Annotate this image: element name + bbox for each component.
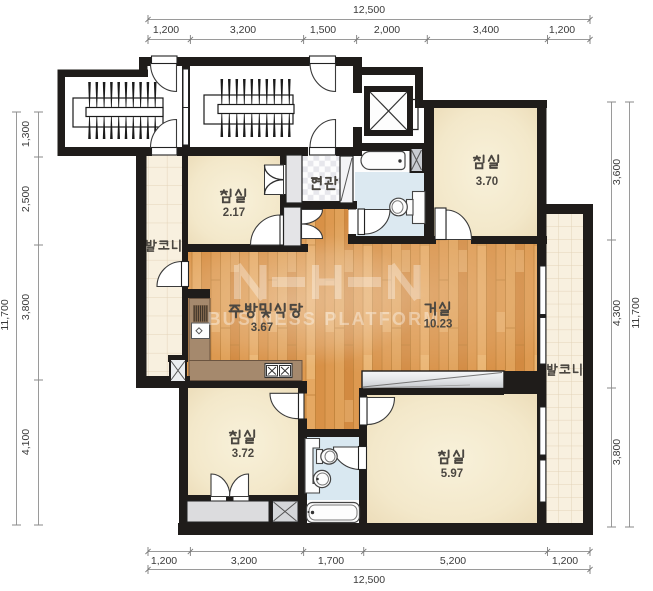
svg-text:5,200: 5,200 (440, 555, 466, 567)
svg-text:1,500: 1,500 (310, 24, 336, 36)
svg-text:3,800: 3,800 (611, 439, 623, 465)
svg-text:12,500: 12,500 (353, 574, 385, 586)
svg-text:2.17: 2.17 (223, 207, 245, 219)
svg-text:3,600: 3,600 (611, 159, 623, 185)
svg-text:3,200: 3,200 (230, 24, 256, 36)
svg-text:1,200: 1,200 (552, 555, 578, 567)
svg-text:2,500: 2,500 (20, 186, 32, 212)
svg-text:1,200: 1,200 (549, 24, 575, 36)
svg-text:4,300: 4,300 (611, 300, 623, 326)
svg-text:1,200: 1,200 (151, 555, 177, 567)
svg-text:2,000: 2,000 (374, 24, 400, 36)
svg-text:1,300: 1,300 (20, 121, 32, 147)
svg-text:1,700: 1,700 (318, 555, 344, 567)
svg-text:3.67: 3.67 (251, 322, 273, 334)
svg-text:3,800: 3,800 (20, 294, 32, 320)
svg-text:4,100: 4,100 (20, 429, 32, 455)
svg-text:11,700: 11,700 (630, 297, 642, 328)
svg-text:11,700: 11,700 (0, 299, 11, 330)
svg-text:10.23: 10.23 (424, 319, 453, 331)
svg-text:12,500: 12,500 (353, 4, 385, 16)
svg-text:3.72: 3.72 (232, 448, 254, 460)
svg-text:3,400: 3,400 (473, 24, 499, 36)
svg-text:3.70: 3.70 (476, 176, 498, 188)
svg-text:5.97: 5.97 (441, 468, 463, 480)
svg-text:3,200: 3,200 (231, 555, 257, 567)
svg-text:1,200: 1,200 (153, 24, 179, 36)
